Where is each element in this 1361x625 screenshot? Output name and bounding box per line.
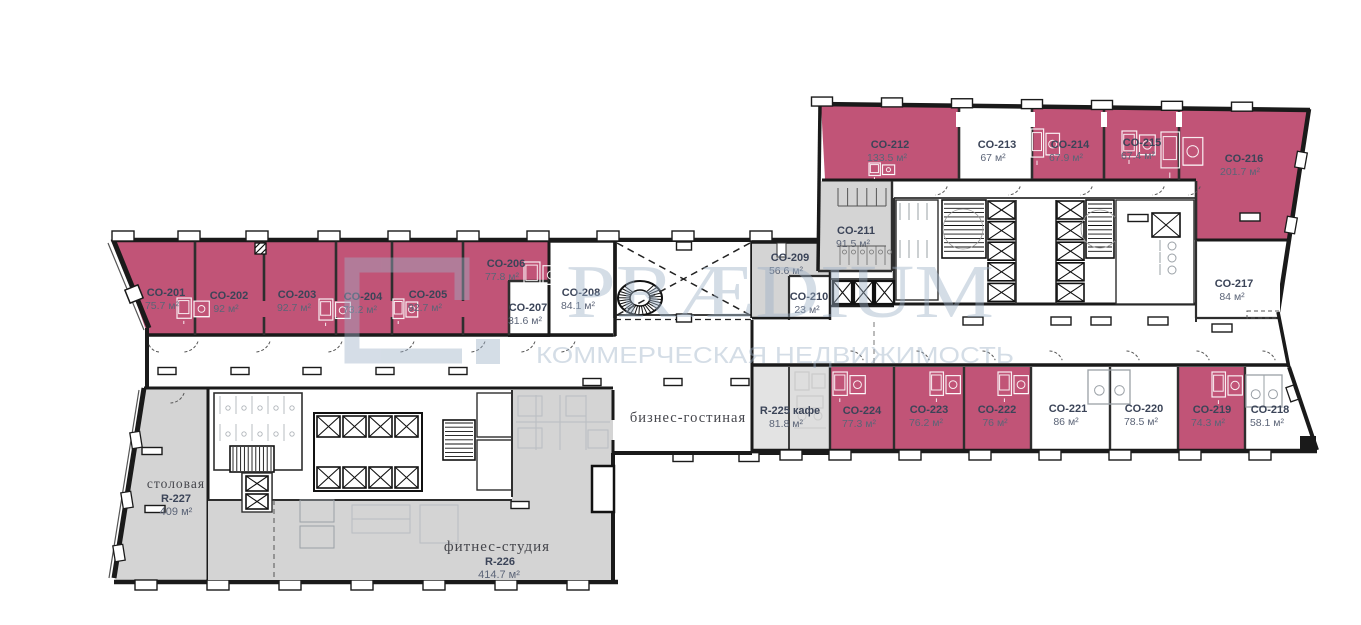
svg-text:бизнес-гостиная: бизнес-гостиная	[630, 410, 746, 426]
svg-text:CO-206: CO-206	[487, 258, 526, 270]
svg-text:CO-217: CO-217	[1215, 278, 1254, 290]
svg-text:67 м²: 67 м²	[980, 152, 1006, 164]
svg-text:CO-220: CO-220	[1125, 403, 1164, 415]
svg-text:CO-213: CO-213	[978, 139, 1017, 151]
svg-text:92 м²: 92 м²	[213, 303, 239, 315]
svg-text:CO-222: CO-222	[978, 404, 1017, 416]
svg-text:201.7 м²: 201.7 м²	[1220, 166, 1260, 178]
svg-text:CO-211: CO-211	[837, 225, 875, 237]
svg-text:76 м²: 76 м²	[982, 417, 1008, 429]
svg-text:75.7 м²: 75.7 м²	[145, 300, 180, 312]
svg-text:столовая: столовая	[147, 476, 205, 491]
svg-text:CO-223: CO-223	[910, 404, 949, 416]
svg-text:R-226: R-226	[485, 556, 515, 568]
svg-text:CO-221: CO-221	[1049, 403, 1088, 415]
svg-text:CO-202: CO-202	[210, 290, 249, 302]
svg-text:81.8 м²: 81.8 м²	[769, 418, 804, 430]
svg-text:CO-212: CO-212	[871, 139, 910, 151]
svg-text:CO-205: CO-205	[409, 289, 448, 301]
svg-text:CO-214: CO-214	[1051, 139, 1090, 151]
svg-text:133.5 м²: 133.5 м²	[867, 152, 907, 164]
svg-text:R-227: R-227	[161, 493, 191, 505]
svg-text:92.7 м²: 92.7 м²	[277, 302, 312, 314]
svg-text:PRÆDIUM: PRÆDIUM	[566, 250, 994, 334]
svg-text:CO-219: CO-219	[1193, 404, 1232, 416]
svg-text:77.8 м²: 77.8 м²	[485, 271, 520, 283]
svg-text:CO-224: CO-224	[843, 405, 882, 417]
svg-text:КОММЕРЧЕСКАЯ НЕДВИЖИМОСТЬ: КОММЕРЧЕСКАЯ НЕДВИЖИМОСТЬ	[536, 342, 1014, 368]
svg-text:77.3 м²: 77.3 м²	[842, 418, 877, 430]
svg-text:R-225 кафе: R-225 кафе	[760, 405, 820, 417]
svg-text:84 м²: 84 м²	[1219, 291, 1245, 303]
svg-text:409 м²: 409 м²	[160, 506, 193, 518]
svg-text:CO-215: CO-215	[1123, 137, 1162, 149]
svg-text:414.7 м²: 414.7 м²	[478, 569, 520, 581]
svg-text:92.7 м²: 92.7 м²	[408, 302, 443, 314]
svg-text:CO-216: CO-216	[1225, 153, 1264, 165]
svg-text:CO-207: CO-207	[509, 302, 548, 314]
svg-text:67.9 м²: 67.9 м²	[1049, 152, 1084, 164]
svg-text:CO-203: CO-203	[278, 289, 317, 301]
svg-text:74.3 м²: 74.3 м²	[1191, 417, 1226, 429]
svg-text:78.5 м²: 78.5 м²	[1124, 416, 1159, 428]
svg-text:86 м²: 86 м²	[1053, 416, 1079, 428]
svg-text:58.1 м²: 58.1 м²	[1250, 417, 1285, 429]
svg-text:91.5 м²: 91.5 м²	[836, 238, 871, 250]
svg-text:76.2 м²: 76.2 м²	[909, 417, 944, 429]
svg-text:67.4 м²: 67.4 м²	[1121, 150, 1156, 162]
svg-text:31.6 м²: 31.6 м²	[508, 315, 543, 327]
svg-text:CO-201: CO-201	[147, 287, 186, 299]
svg-text:фитнес-студия: фитнес-студия	[444, 539, 550, 555]
svg-text:CO-218: CO-218	[1251, 404, 1290, 416]
